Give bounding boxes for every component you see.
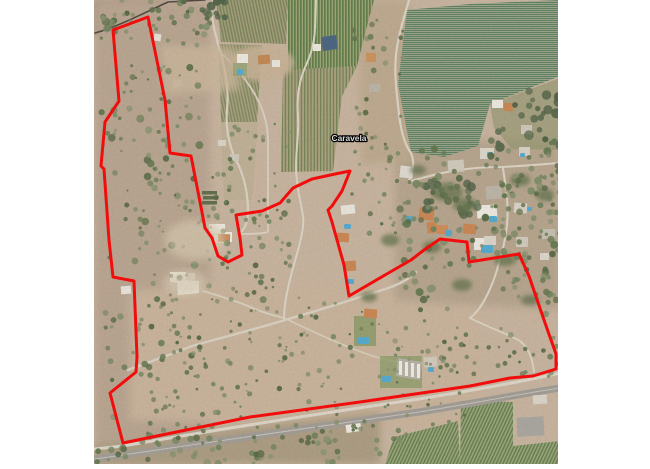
svg-text:Caravela: Caravela bbox=[332, 133, 367, 143]
